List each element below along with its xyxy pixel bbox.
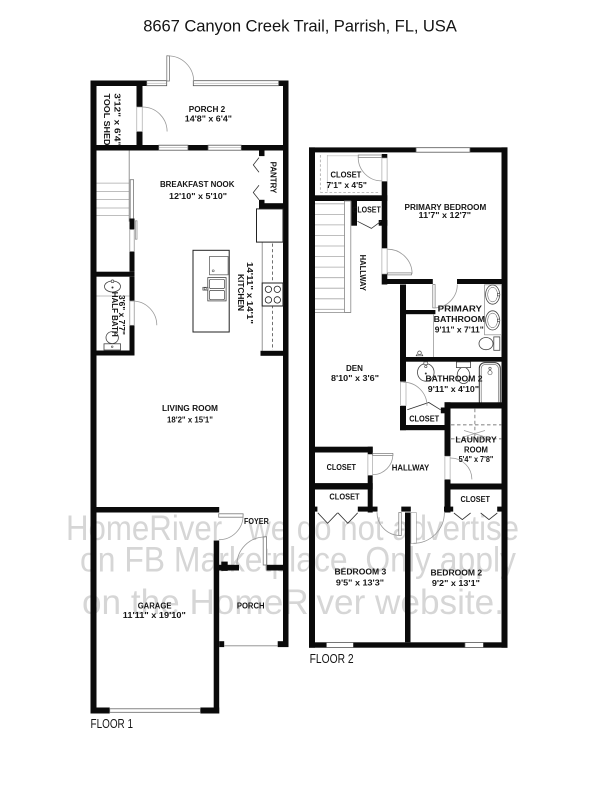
svg-text:KITCHEN: KITCHEN bbox=[236, 274, 246, 311]
svg-text:BEDROOM 3: BEDROOM 3 bbox=[335, 566, 387, 576]
svg-text:5'4" x 7'8": 5'4" x 7'8" bbox=[459, 454, 494, 464]
svg-text:FLOOR 2: FLOOR 2 bbox=[310, 651, 354, 666]
svg-text:8667 Canyon Creek Trail, Parri: 8667 Canyon Creek Trail, Parrish, FL, US… bbox=[143, 17, 457, 36]
svg-text:14'11" x 14'1": 14'11" x 14'1" bbox=[245, 262, 255, 324]
svg-text:ROOM: ROOM bbox=[464, 444, 488, 454]
svg-text:HALLWAY: HALLWAY bbox=[392, 463, 430, 473]
svg-text:TOOL SHED: TOOL SHED bbox=[102, 94, 112, 146]
svg-text:12'10" x 5'10": 12'10" x 5'10" bbox=[169, 191, 227, 201]
svg-text:14'8" x 6'4": 14'8" x 6'4" bbox=[185, 114, 232, 124]
svg-text:CLOSET: CLOSET bbox=[352, 205, 381, 215]
svg-text:FLOOR 1: FLOOR 1 bbox=[91, 716, 134, 731]
svg-text:CLOSET: CLOSET bbox=[329, 492, 360, 502]
svg-text:11'11" x 19'10": 11'11" x 19'10" bbox=[123, 610, 186, 620]
svg-text:BEDROOM 2: BEDROOM 2 bbox=[430, 567, 482, 577]
svg-text:CLOSET: CLOSET bbox=[327, 462, 357, 472]
svg-text:9'5" x 13'3": 9'5" x 13'3" bbox=[336, 578, 384, 588]
svg-text:CLOSET: CLOSET bbox=[461, 494, 491, 504]
svg-text:9'11" x 4'10": 9'11" x 4'10" bbox=[428, 384, 479, 394]
svg-text:9'11" x 7'11": 9'11" x 7'11" bbox=[435, 325, 484, 335]
svg-text:CLOSET: CLOSET bbox=[409, 414, 440, 424]
svg-text:3'12" x 6'4": 3'12" x 6'4" bbox=[113, 93, 123, 146]
svg-text:CLOSET: CLOSET bbox=[330, 170, 362, 180]
svg-text:FOYER: FOYER bbox=[244, 516, 269, 526]
svg-text:PORCH: PORCH bbox=[237, 601, 265, 611]
svg-text:DEN: DEN bbox=[346, 363, 363, 373]
svg-text:7'1" x 4'5": 7'1" x 4'5" bbox=[326, 180, 367, 190]
svg-text:HALLWAY: HALLWAY bbox=[358, 255, 368, 292]
svg-text:11'7" x 12'7": 11'7" x 12'7" bbox=[419, 210, 472, 220]
svg-text:BATHROOM 2: BATHROOM 2 bbox=[425, 373, 482, 383]
svg-text:3'6" x 7'7": 3'6" x 7'7" bbox=[117, 295, 127, 335]
svg-text:18'2" x 15'1": 18'2" x 15'1" bbox=[167, 415, 213, 425]
svg-text:BATHROOM: BATHROOM bbox=[434, 314, 485, 324]
svg-text:8'10" x 3'6": 8'10" x 3'6" bbox=[331, 373, 379, 383]
svg-text:9'2" x 13'1": 9'2" x 13'1" bbox=[432, 578, 480, 588]
svg-text:LIVING ROOM: LIVING ROOM bbox=[162, 403, 218, 413]
svg-text:PRIMARY: PRIMARY bbox=[438, 304, 483, 314]
svg-text:BREAKFAST NOOK: BREAKFAST NOOK bbox=[160, 179, 235, 189]
svg-text:PANTRY: PANTRY bbox=[269, 162, 279, 194]
svg-text:LAUNDRY: LAUNDRY bbox=[455, 435, 497, 445]
